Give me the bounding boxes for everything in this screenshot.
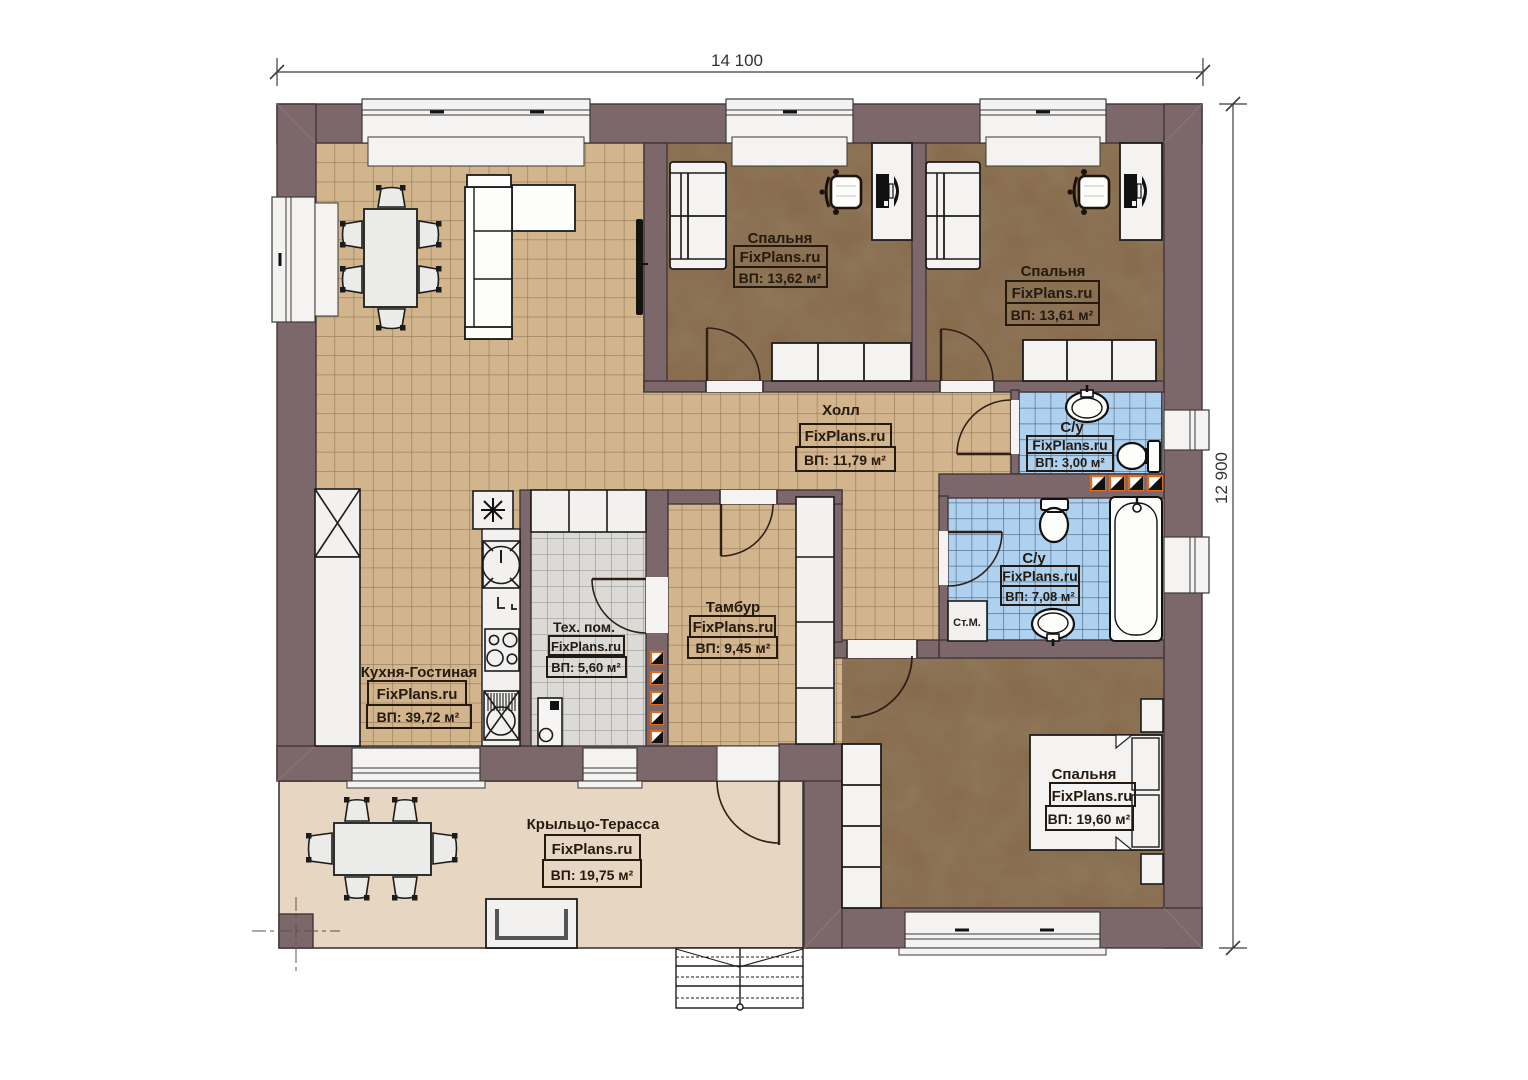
- svg-text:С/у: С/у: [1022, 550, 1046, 567]
- svg-text:FixPlans.ru: FixPlans.ru: [1012, 285, 1093, 302]
- svg-text:Спальня: Спальня: [1021, 263, 1086, 280]
- svg-text:Спальня: Спальня: [748, 230, 813, 247]
- svg-text:ВП: 39,72 м²: ВП: 39,72 м²: [377, 709, 460, 725]
- svg-text:Спальня: Спальня: [1052, 766, 1117, 783]
- svg-text:FixPlans.ru: FixPlans.ru: [1052, 788, 1133, 805]
- svg-text:ВП: 9,45 м²: ВП: 9,45 м²: [696, 640, 771, 656]
- svg-text:ВП: 13,61 м²: ВП: 13,61 м²: [1011, 307, 1094, 323]
- svg-text:FixPlans.ru: FixPlans.ru: [1002, 568, 1077, 584]
- svg-text:FixPlans.ru: FixPlans.ru: [377, 686, 458, 703]
- svg-text:Холл: Холл: [822, 402, 860, 419]
- svg-text:Тамбур: Тамбур: [706, 599, 760, 616]
- svg-text:ВП: 13,62 м²: ВП: 13,62 м²: [739, 270, 822, 286]
- svg-text:14 100: 14 100: [711, 51, 763, 70]
- svg-text:ВП: 5,60 м²: ВП: 5,60 м²: [551, 660, 621, 675]
- svg-text:Тех. пом.: Тех. пом.: [553, 619, 615, 635]
- svg-text:Крыльцо-Терасса: Крыльцо-Терасса: [527, 816, 660, 833]
- svg-text:ВП: 19,75 м²: ВП: 19,75 м²: [551, 867, 634, 883]
- svg-text:FixPlans.ru: FixPlans.ru: [740, 249, 821, 266]
- svg-text:FixPlans.ru: FixPlans.ru: [1032, 437, 1107, 453]
- svg-text:Кухня-Гостиная: Кухня-Гостиная: [361, 664, 478, 681]
- svg-text:12 900: 12 900: [1212, 452, 1231, 504]
- svg-text:С/у: С/у: [1060, 419, 1084, 436]
- svg-text:FixPlans.ru: FixPlans.ru: [552, 841, 633, 858]
- svg-text:FixPlans.ru: FixPlans.ru: [805, 428, 886, 445]
- svg-text:FixPlans.ru: FixPlans.ru: [693, 619, 774, 636]
- svg-text:ВП: 3,00 м²: ВП: 3,00 м²: [1035, 455, 1105, 470]
- svg-text:Ст.М.: Ст.М.: [953, 617, 981, 629]
- svg-text:ВП: 19,60 м²: ВП: 19,60 м²: [1048, 811, 1131, 827]
- svg-text:FixPlans.ru: FixPlans.ru: [551, 639, 621, 654]
- svg-text:ВП: 7,08 м²: ВП: 7,08 м²: [1005, 589, 1075, 604]
- svg-text:ВП: 11,79 м²: ВП: 11,79 м²: [804, 452, 886, 468]
